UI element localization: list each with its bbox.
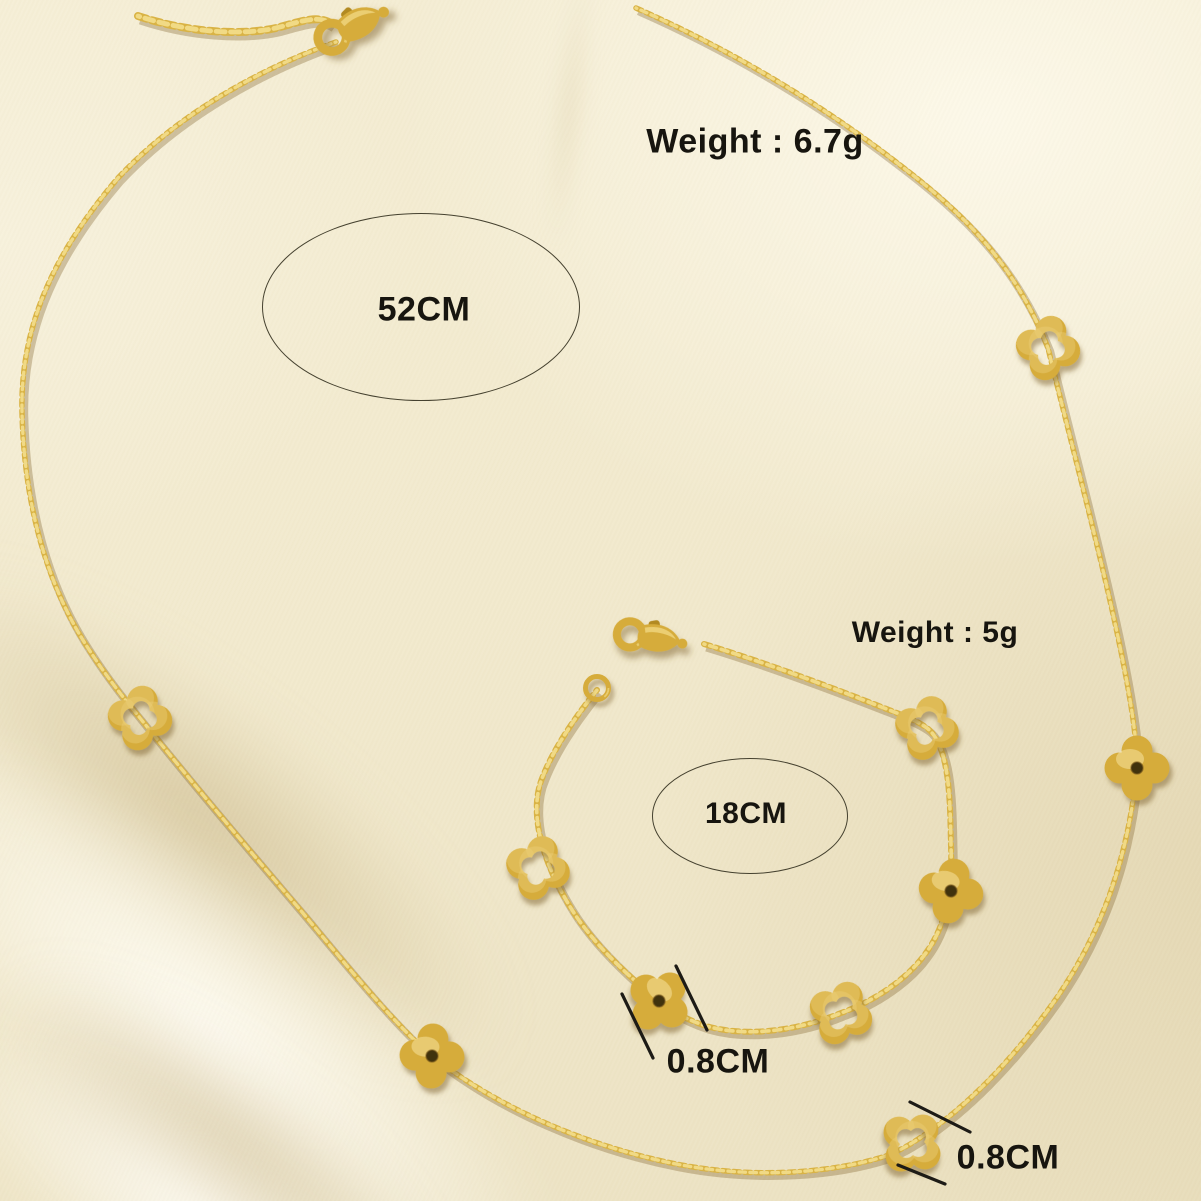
bracelet-charm-size-label: 0.8CM bbox=[667, 1043, 770, 1082]
bracelet-charm-hollow-bottom bbox=[798, 969, 884, 1055]
bracelet-weight-label: Weight : 5g bbox=[852, 616, 1019, 650]
product-photo: Weight : 6.7g 52CM Weight : 5g 18CM 0.8C… bbox=[0, 0, 1201, 1201]
necklace-weight-label: Weight : 6.7g bbox=[646, 123, 863, 162]
jewelry-illustration bbox=[0, 0, 1201, 1201]
necklace-lobster-clasp bbox=[310, 0, 394, 57]
necklace-charm-hollow-bottom bbox=[866, 1096, 959, 1189]
necklace-charm-solid-right bbox=[1105, 736, 1170, 801]
necklace-chain bbox=[22, 8, 1140, 1176]
bracelet-charm-solid-right bbox=[913, 853, 988, 928]
chains-layer bbox=[22, 8, 1140, 1176]
bracelet-charm-hollow-top bbox=[887, 687, 967, 768]
bracelet-length-label: 18CM bbox=[705, 797, 787, 831]
necklace-charm-size-label: 0.8CM bbox=[957, 1139, 1060, 1178]
necklace-length-label: 52CM bbox=[378, 291, 471, 330]
bracelet-lobster-clasp bbox=[615, 614, 690, 656]
necklace-extender-chain bbox=[138, 16, 335, 36]
necklace-charm-hollow-right bbox=[1010, 309, 1086, 386]
